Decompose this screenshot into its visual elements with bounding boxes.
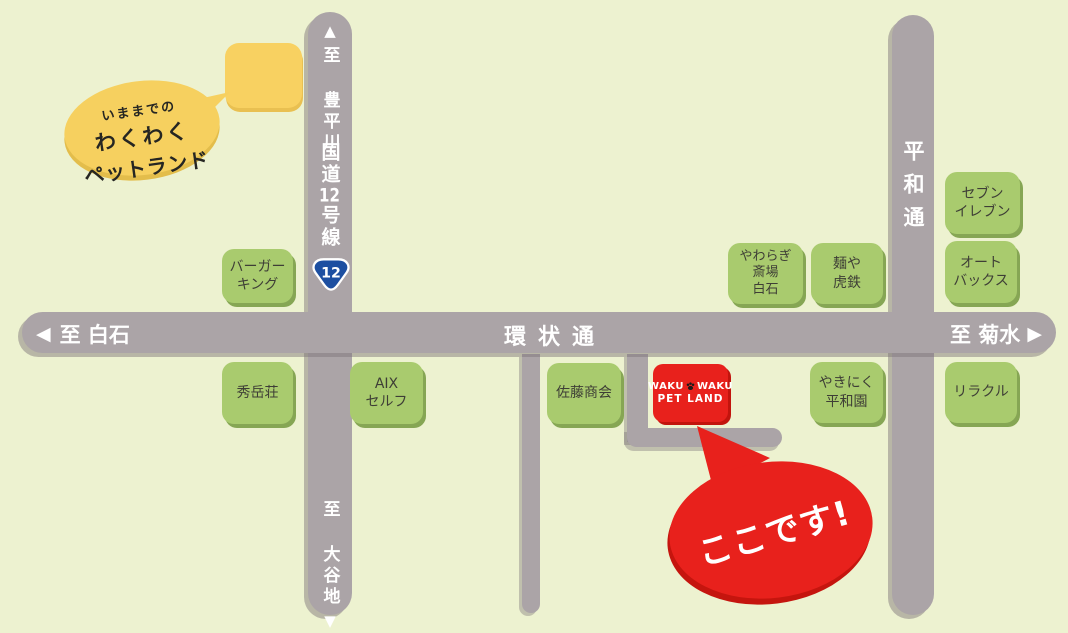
building-riracle: リラクル <box>945 362 1017 423</box>
building-menya-kotetsu: 麺や 虎鉄 <box>811 243 883 304</box>
access-map: ▲ 至 豊平川 国道12号線 12 至 大谷地 ▼ ◀ 至 白石 環状通 至 菊… <box>0 0 1068 633</box>
building-yawaragi-saijo-shiroishi: やわらぎ 斎場 白石 <box>728 243 803 304</box>
paw-icon <box>686 382 695 391</box>
route12-name-pre: 国道 <box>319 142 341 186</box>
store-name-word1: WAKU <box>648 381 684 392</box>
route12-to-oyachi-label: 至 大谷地 <box>318 500 343 608</box>
kanjo-to-kikusui-label: 至 菊水 <box>950 319 1020 349</box>
route12-destination-top: ▲ 至 豊平川 <box>308 24 352 154</box>
road-small-street <box>522 354 540 613</box>
store-name-word2: WAKU <box>697 381 733 392</box>
kanjo-to-shiroishi-label: 至 白石 <box>60 319 130 349</box>
store-name-line2: PET LAND <box>657 393 723 405</box>
route-12-shield-icon: 12 <box>312 256 350 291</box>
route12-name: 国道12号線 <box>308 142 352 249</box>
building-seven-eleven: セブン イレブン <box>945 172 1020 234</box>
arrow-right-icon: ▶ <box>1027 323 1042 345</box>
building-autobacs: オート バックス <box>945 241 1017 303</box>
arrow-down-icon: ▼ <box>324 614 336 629</box>
arrow-up-icon: ▲ <box>324 24 336 39</box>
building-burger-king: バーガー キング <box>222 249 293 303</box>
building-shugakuso: 秀岳荘 <box>222 362 293 424</box>
heiwa-dori-name: 平和通 <box>892 140 934 239</box>
route12-name-post: 号線 <box>319 205 341 249</box>
kanjo-destination-left: ◀ 至 白石 <box>36 319 130 349</box>
route12-destination-bottom: 至 大谷地 ▼ <box>308 500 352 629</box>
route12-name-number: 12 <box>319 186 341 205</box>
kanjo-dori-name: 環状通 <box>455 319 655 351</box>
arrow-left-icon: ◀ <box>36 323 51 345</box>
route12-badge-number: 12 <box>321 265 341 281</box>
building-aix-self: AIX セルフ <box>350 362 423 424</box>
building-sato-shokai: 佐藤商会 <box>547 363 621 424</box>
route12-to-toyohiragawa-label: 至 豊平川 <box>318 46 343 154</box>
kanjo-destination-right: 至 菊水 ▶ <box>950 319 1042 349</box>
